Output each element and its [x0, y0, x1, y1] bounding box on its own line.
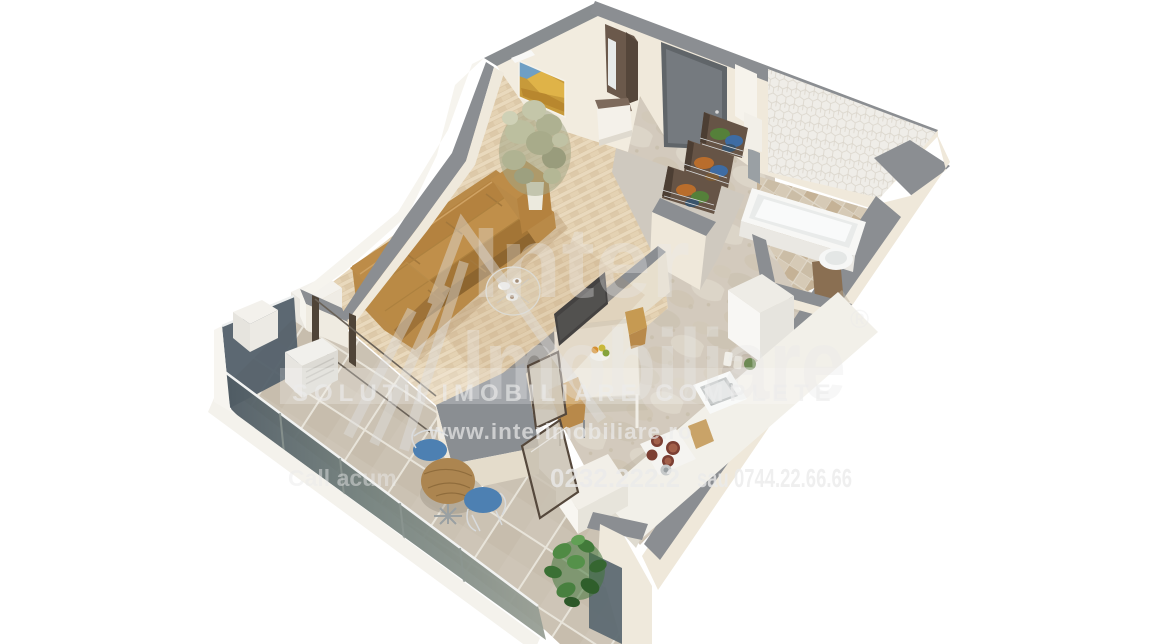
svg-text:®: ® [850, 304, 869, 334]
svg-text:0232.222.2: 0232.222.2 [550, 463, 680, 493]
svg-text:www.interimobiliare.ro: www.interimobiliare.ro [428, 419, 693, 444]
svg-text:SOLUTII IMOBILIARE COMPLETE: SOLUTII IMOBILIARE COMPLETE [292, 380, 837, 407]
svg-text:Inter: Inter [472, 207, 690, 319]
svg-text:sau 0744.22.66.66: sau 0744.22.66.66 [697, 463, 852, 493]
svg-text:Call acum: Call acum [288, 465, 397, 491]
